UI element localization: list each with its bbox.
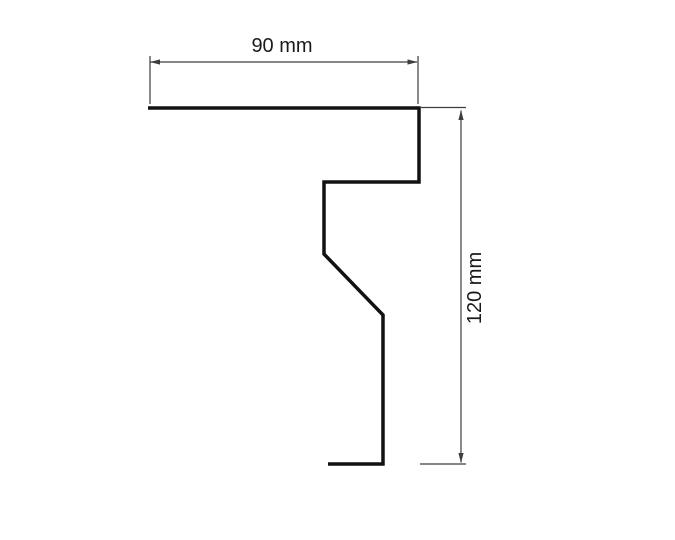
profile-outline (148, 108, 419, 464)
width-dimension-label: 90 mm (251, 35, 312, 57)
height-dimension-label: 120 mm (464, 252, 486, 324)
profile-diagram: 90 mm 120 mm (0, 0, 675, 540)
arrowhead-top-icon (458, 110, 463, 120)
arrowhead-left-icon (150, 59, 160, 64)
arrowhead-right-icon (408, 59, 418, 64)
technical-drawing-canvas: 90 mm 120 mm (0, 0, 675, 540)
arrowhead-bottom-icon (458, 453, 463, 463)
height-dimension: 120 mm (420, 108, 486, 465)
width-dimension: 90 mm (150, 35, 418, 104)
